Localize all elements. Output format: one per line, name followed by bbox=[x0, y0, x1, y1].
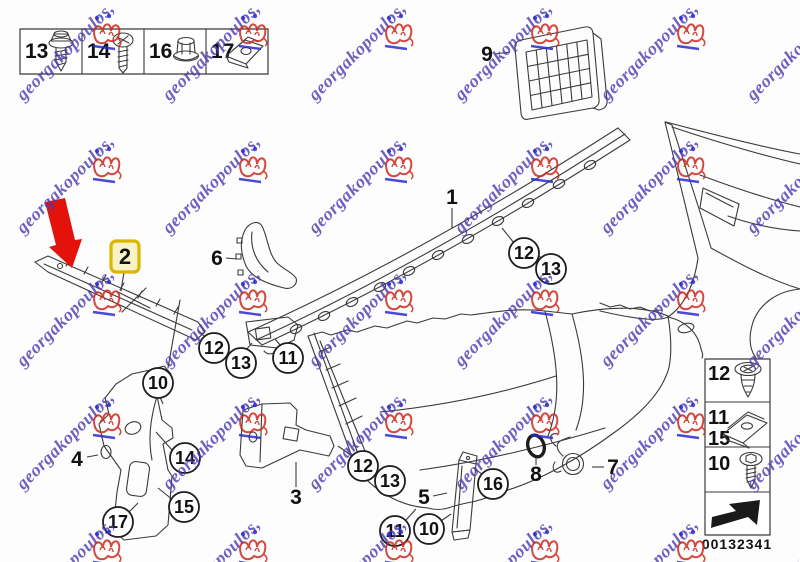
part-label-1: 1 bbox=[446, 186, 458, 209]
part-label-4: 4 bbox=[71, 448, 83, 471]
part-label-5: 5 bbox=[418, 486, 430, 509]
svg-text:13: 13 bbox=[231, 353, 251, 373]
part-label-8: 8 bbox=[530, 463, 542, 486]
legend-number-16: 16 bbox=[149, 40, 172, 63]
callout-12-lower: 12 bbox=[348, 451, 378, 481]
callout-16-lower: 16 bbox=[478, 469, 508, 499]
callout-11-lower: 11 bbox=[380, 516, 410, 546]
callout-12-strip: 12 bbox=[509, 238, 539, 268]
parts-diagram-canvas: 2 1 3 4 5 6 7 8 9 12 13 11 10 14 15 17 1… bbox=[0, 0, 800, 562]
diagram-code: 00132341 bbox=[702, 536, 772, 552]
legend-number-11: 11 bbox=[708, 407, 729, 429]
legend-number-14: 14 bbox=[87, 40, 111, 63]
svg-text:12: 12 bbox=[514, 243, 534, 263]
svg-text:16: 16 bbox=[483, 474, 503, 494]
callout-17-bracket: 17 bbox=[103, 507, 133, 537]
callout-11-rail: 11 bbox=[273, 343, 303, 373]
svg-text:11: 11 bbox=[385, 521, 404, 541]
callout-12-rail: 12 bbox=[199, 333, 229, 363]
svg-text:10: 10 bbox=[148, 373, 168, 393]
part-label-7: 7 bbox=[607, 456, 619, 479]
callout-13-strip: 13 bbox=[536, 254, 566, 284]
svg-text:12: 12 bbox=[353, 456, 373, 476]
legend-number-13: 13 bbox=[25, 40, 48, 63]
svg-text:14: 14 bbox=[175, 448, 195, 468]
callout-10-bracket: 10 bbox=[143, 368, 173, 398]
fastener-legend-top: 13 14 16 17 bbox=[20, 29, 268, 74]
callout-13-rail: 13 bbox=[226, 348, 256, 378]
diagram-artwork: 2 1 3 4 5 6 7 8 9 12 13 11 10 14 15 17 1… bbox=[0, 0, 800, 562]
fastener-legend-right: 12 11 15 10 00132341 bbox=[702, 359, 772, 552]
part-label-9: 9 bbox=[481, 43, 493, 66]
callout-10-lower: 10 bbox=[414, 514, 444, 544]
part-label-3: 3 bbox=[290, 486, 302, 509]
callout-13-lower: 13 bbox=[375, 466, 405, 496]
part-label-2: 2 bbox=[119, 244, 131, 269]
callout-14-bracket: 14 bbox=[170, 443, 200, 473]
svg-text:11: 11 bbox=[278, 348, 297, 368]
legend-number-10: 10 bbox=[708, 453, 730, 475]
callout-15-bracket: 15 bbox=[169, 492, 199, 522]
part-label-6: 6 bbox=[211, 247, 223, 270]
svg-text:13: 13 bbox=[380, 471, 400, 491]
svg-text:15: 15 bbox=[174, 497, 194, 517]
legend-number-12: 12 bbox=[708, 363, 730, 385]
svg-text:10: 10 bbox=[419, 519, 439, 539]
svg-text:17: 17 bbox=[108, 512, 128, 532]
highlighted-part-label: 2 bbox=[111, 241, 139, 272]
svg-text:13: 13 bbox=[541, 259, 561, 279]
svg-text:12: 12 bbox=[204, 338, 224, 358]
